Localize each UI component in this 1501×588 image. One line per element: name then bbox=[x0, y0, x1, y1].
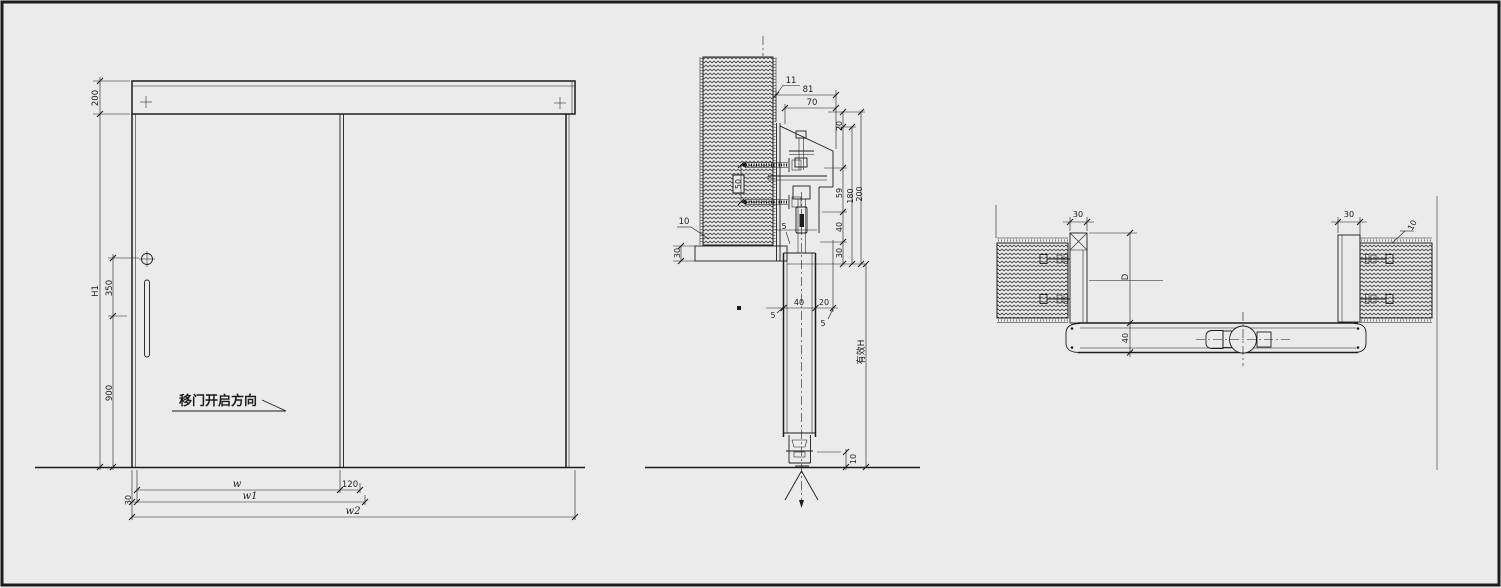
dim-label: 5 bbox=[820, 319, 825, 328]
reference-dot bbox=[737, 306, 741, 310]
dim-label: 5 bbox=[781, 222, 786, 231]
dim-label: 120 bbox=[342, 480, 358, 490]
track-assembly bbox=[768, 123, 833, 261]
cad-canvas: 200 H1 350 900 移门开启方向 w 120 bbox=[0, 0, 1501, 588]
plan-lock-assembly bbox=[1196, 312, 1291, 366]
vertical-section-view: 50 bbox=[645, 36, 920, 508]
effective-height-label: 有效H bbox=[855, 340, 867, 365]
dim-label: w1 bbox=[243, 491, 258, 502]
plan-right-jamb-dim: 30 bbox=[1331, 210, 1367, 241]
dim-label: 5 bbox=[770, 311, 775, 320]
dim-label: 30 bbox=[1344, 210, 1354, 219]
dim-label: 350 bbox=[105, 280, 115, 296]
horizontal-section-view: 30 D 40 bbox=[996, 196, 1437, 470]
dim-label: 30 bbox=[673, 248, 682, 258]
open-direction-label: 移门开启方向 bbox=[179, 393, 257, 409]
plan-finish-dim: 10 bbox=[1392, 219, 1419, 243]
dim-label: 180 bbox=[846, 188, 855, 203]
plan-opening-dims: D 40 bbox=[1089, 230, 1163, 357]
dim-label: 59 bbox=[835, 188, 844, 198]
dim-label: 20 bbox=[819, 298, 829, 307]
door-header-box bbox=[132, 81, 575, 114]
dim-label: 30 bbox=[124, 495, 133, 505]
dim-label: 20 bbox=[835, 121, 844, 131]
door-panels bbox=[132, 114, 569, 467]
dim-label: w bbox=[233, 479, 242, 490]
arrow-head bbox=[262, 400, 286, 411]
dim-label: 40 bbox=[794, 298, 804, 307]
ceiling-board bbox=[695, 246, 787, 261]
wall-section bbox=[700, 36, 776, 245]
dim-label: 30 bbox=[835, 248, 844, 258]
dim-label: 40 bbox=[1121, 333, 1130, 343]
dim-label: 30 bbox=[1073, 210, 1083, 219]
dim-label: H1 bbox=[91, 285, 101, 297]
door-handle bbox=[139, 251, 155, 357]
floor-guide bbox=[784, 433, 819, 500]
drawing-sheet: 200 H1 350 900 移门开启方向 w 120 bbox=[0, 0, 1501, 588]
dim-label: 10 bbox=[1406, 219, 1419, 232]
section-right-dims: 20 59 40 30 180 200 有效H bbox=[787, 109, 869, 470]
dim-label: 11 bbox=[786, 76, 797, 86]
plan-jamb-left bbox=[1070, 233, 1087, 323]
dim-label: 50 bbox=[734, 179, 743, 189]
dim-label: 10 bbox=[849, 454, 858, 464]
dim-label: 10 bbox=[679, 217, 690, 227]
dim-label: w2 bbox=[346, 506, 361, 517]
elevation-bottom-dims: w 120 30 w1 w2 bbox=[124, 470, 578, 520]
open-direction-annotation: 移门开启方向 bbox=[172, 393, 286, 411]
plan-wall-left bbox=[996, 205, 1068, 323]
dim-label: 900 bbox=[105, 385, 115, 401]
dim-label: 81 bbox=[803, 85, 814, 95]
dim-label: 70 bbox=[807, 98, 818, 108]
dim-label: 200 bbox=[91, 90, 101, 106]
dim-label: 40 bbox=[835, 222, 844, 232]
plan-left-jamb-dim: 30 bbox=[1063, 210, 1094, 231]
dim-label: 200 bbox=[855, 186, 864, 201]
plan-jamb-right bbox=[1338, 235, 1360, 322]
dim-label: D bbox=[1121, 273, 1131, 280]
elevation-view: 200 H1 350 900 移门开启方向 w 120 bbox=[35, 77, 585, 520]
